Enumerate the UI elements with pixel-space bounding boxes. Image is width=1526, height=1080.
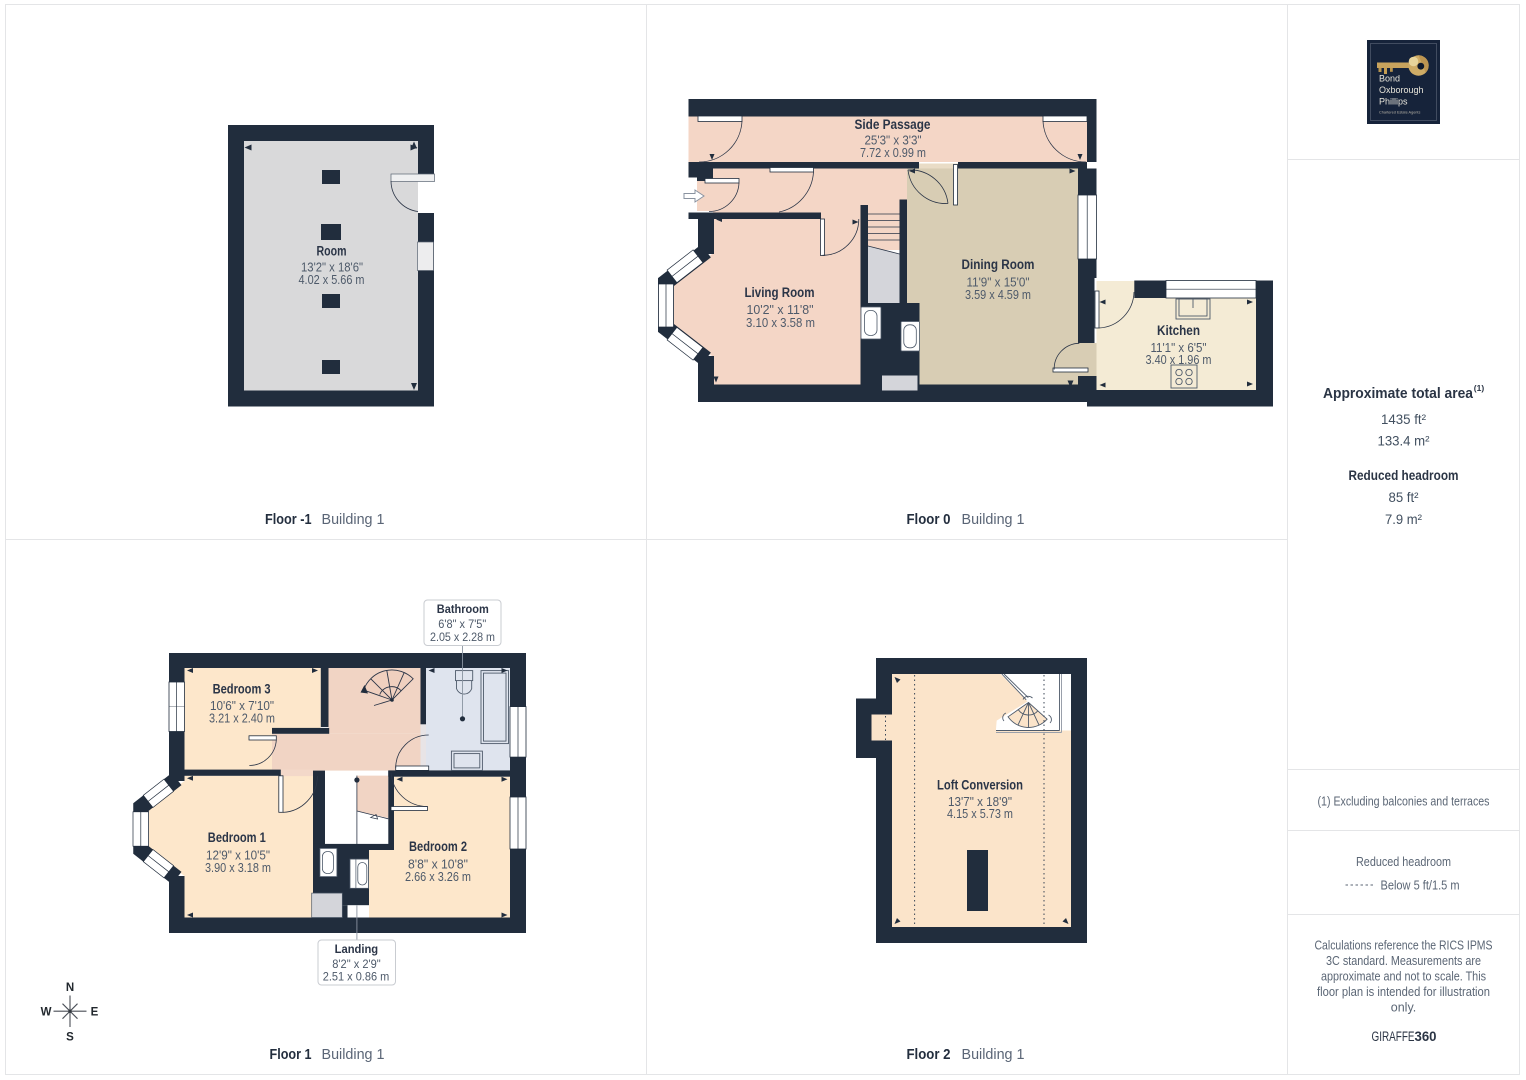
svg-text:Chartered Estate Agents: Chartered Estate Agents [1379,111,1420,115]
svg-text:133.4 m²: 133.4 m² [1378,433,1430,449]
svg-text:Landing: Landing [335,942,379,956]
svg-text:floor plan is intended for ill: floor plan is intended for illustration [1317,985,1490,999]
svg-text:E: E [91,1007,99,1019]
svg-text:3.59 x 4.59 m: 3.59 x 4.59 m [965,287,1031,302]
svg-text:2.66 x 3.26 m: 2.66 x 3.26 m [405,869,471,884]
svg-text:Building 1: Building 1 [322,1047,385,1063]
svg-text:1435 ft²: 1435 ft² [1381,411,1426,427]
svg-text:Bedroom 3: Bedroom 3 [213,682,271,697]
svg-text:3C standard. Measurements are: 3C standard. Measurements are [1326,954,1481,968]
svg-text:Oxborough: Oxborough [1379,85,1424,95]
svg-text:4.02 x 5.66 m: 4.02 x 5.66 m [299,272,365,287]
svg-text:N: N [66,982,74,994]
svg-text:2.51 x 0.86 m: 2.51 x 0.86 m [323,970,390,984]
svg-text:Floor -1: Floor -1 [265,512,312,528]
svg-text:7.72 x 0.99 m: 7.72 x 0.99 m [860,145,926,160]
svg-text:Room: Room [317,244,347,259]
svg-text:Building 1: Building 1 [322,512,385,528]
svg-text:S: S [66,1032,74,1044]
svg-text:(1) Excluding balconies and te: (1) Excluding balconies and terraces [1318,795,1490,809]
svg-text:Loft Conversion: Loft Conversion [937,778,1023,793]
svg-text:6'8" x 7'5": 6'8" x 7'5" [438,617,486,631]
svg-text:Approximate total area: Approximate total area [1323,385,1474,402]
svg-text:Building 1: Building 1 [962,512,1025,528]
svg-text:3.21 x 2.40 m: 3.21 x 2.40 m [209,711,275,726]
svg-text:Dining Room: Dining Room [962,257,1035,272]
svg-text:3.90 x 3.18 m: 3.90 x 3.18 m [205,860,271,875]
svg-text:Kitchen: Kitchen [1157,323,1200,338]
svg-text:360: 360 [1415,1029,1437,1044]
svg-text:(1): (1) [1474,383,1485,393]
svg-text:GIRAFFE: GIRAFFE [1372,1029,1415,1044]
svg-text:3.10 x 3.58 m: 3.10 x 3.58 m [746,315,815,330]
svg-text:Bathroom: Bathroom [437,602,489,616]
svg-text:approximate and not to scale.: approximate and not to scale. This [1321,970,1486,984]
svg-text:Bedroom 2: Bedroom 2 [409,839,467,854]
svg-text:Floor 0: Floor 0 [907,512,951,528]
svg-text:Building 1: Building 1 [962,1047,1025,1063]
svg-text:Floor 1: Floor 1 [270,1047,312,1063]
svg-text:Floor 2: Floor 2 [907,1047,951,1063]
svg-text:Phillips: Phillips [1379,97,1408,107]
svg-text:Calculations reference the RIC: Calculations reference the RICS IPMS [1315,939,1493,953]
svg-text:Side Passage: Side Passage [855,117,931,132]
svg-text:4.15 x 5.73 m: 4.15 x 5.73 m [947,806,1013,821]
svg-text:only.: only. [1391,1001,1417,1015]
svg-text:85 ft²: 85 ft² [1389,489,1419,505]
svg-text:Reduced headroom: Reduced headroom [1356,854,1451,869]
svg-text:Living Room: Living Room [745,285,815,300]
svg-text:Reduced headroom: Reduced headroom [1349,468,1459,483]
svg-text:Below 5 ft/1.5 m: Below 5 ft/1.5 m [1381,878,1460,893]
svg-text:Bond: Bond [1379,74,1400,84]
svg-text:W: W [41,1007,52,1019]
svg-text:Bedroom 1: Bedroom 1 [208,830,266,845]
svg-text:7.9 m²: 7.9 m² [1385,511,1422,527]
svg-text:2.05 x 2.28 m: 2.05 x 2.28 m [430,630,495,644]
